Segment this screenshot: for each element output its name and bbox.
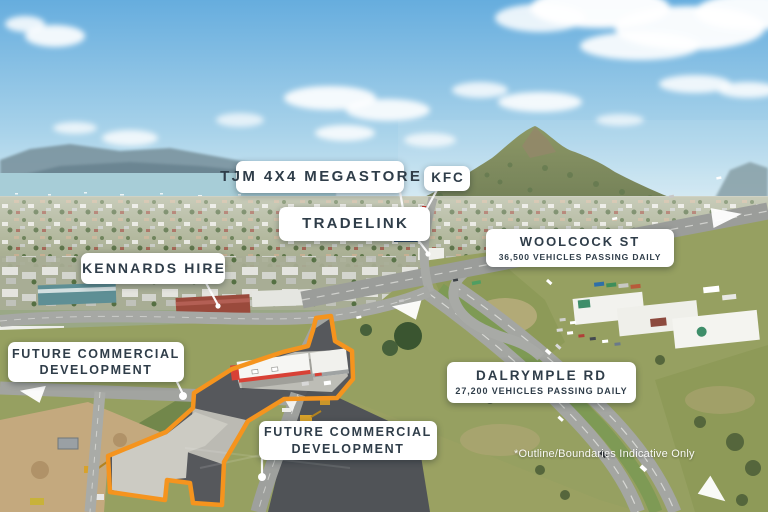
boundary-disclaimer-text: *Outline/Boundaries Indicative Only <box>514 448 695 460</box>
callout-label: KENNARDS HIRE <box>82 260 226 277</box>
callout-label: TRADELINK <box>302 215 409 233</box>
callout-label: TJM 4X4 MEGASTORE <box>220 168 422 186</box>
callout-kfc: KFC <box>424 166 470 191</box>
callout-label: KFC <box>431 170 464 186</box>
callout-line: DEVELOPMENT <box>39 362 152 378</box>
street-name: DALRYMPLE RD <box>476 368 607 384</box>
annotated-aerial-photo: TJM 4X4 MEGASTORE KFC TRADELINK KENNARDS… <box>0 0 768 512</box>
traffic-count: 27,200 VEHICLES PASSING DAILY <box>455 386 627 397</box>
callout-woolcock-st: WOOLCOCK ST 36,500 VEHICLES PASSING DAIL… <box>486 229 674 267</box>
callout-tradelink: TRADELINK <box>279 207 430 241</box>
callout-line: FUTURE COMMERCIAL <box>12 346 180 362</box>
street-name: WOOLCOCK ST <box>520 234 640 250</box>
traffic-count: 36,500 VEHICLES PASSING DAILY <box>499 252 662 262</box>
callout-tjm-megastore: TJM 4X4 MEGASTORE <box>236 161 404 193</box>
callout-line: FUTURE COMMERCIAL <box>264 424 432 440</box>
callout-dalrymple-rd: DALRYMPLE RD 27,200 VEHICLES PASSING DAI… <box>447 362 636 403</box>
callout-future-development-west: FUTURE COMMERCIAL DEVELOPMENT <box>8 342 184 382</box>
callout-kennards-hire: KENNARDS HIRE <box>81 253 225 284</box>
callout-line: DEVELOPMENT <box>291 441 404 457</box>
callout-future-development-south: FUTURE COMMERCIAL DEVELOPMENT <box>259 421 437 460</box>
